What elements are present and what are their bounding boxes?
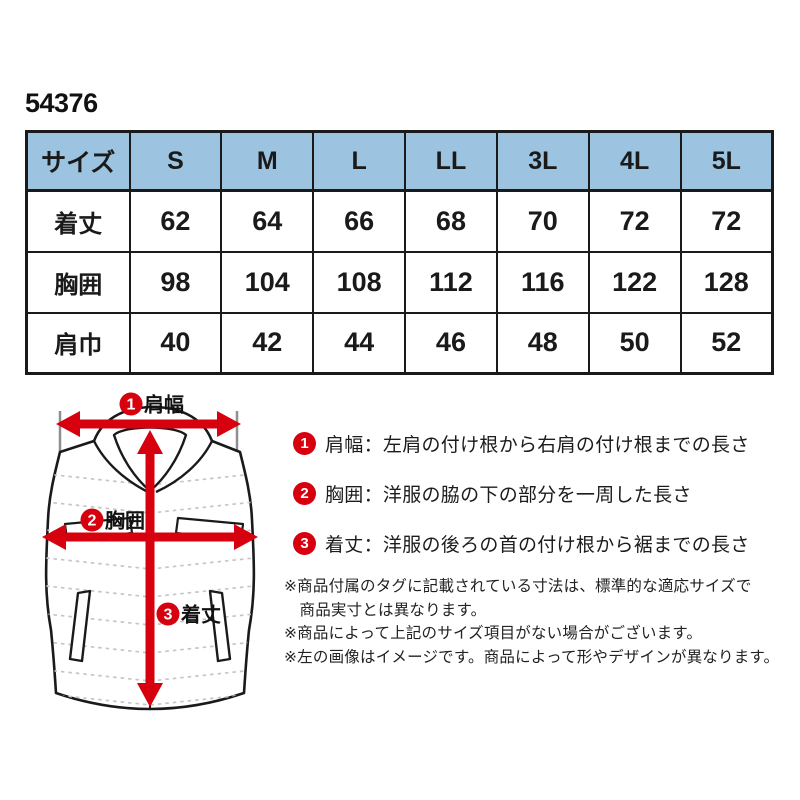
diagram-badge-shoulder: 1 肩幅 <box>120 393 185 417</box>
note-missing-items: ※商品によって上記のサイズ項目がない場合がございます。 <box>284 622 786 646</box>
table-cell: 104 <box>221 252 313 313</box>
table-cell: 70 <box>497 191 589 252</box>
size-col-header: 3L <box>497 132 589 191</box>
size-col-header: L <box>313 132 405 191</box>
diagram-badge-chest: 2 胸囲 <box>81 509 146 533</box>
size-col-header: M <box>221 132 313 191</box>
table-row-chest: 胸囲 98 104 108 112 116 122 128 <box>27 252 773 313</box>
svg-text:肩幅: 肩幅 <box>144 393 184 417</box>
svg-text:3: 3 <box>164 607 173 624</box>
row-label: 着丈 <box>27 191 130 252</box>
table-cell: 44 <box>313 313 405 374</box>
table-cell: 46 <box>405 313 497 374</box>
legend-item-length: 3 着丈：洋服の後ろの首の付け根から裾までの長さ <box>293 531 785 555</box>
measurement-legend: 1 肩幅：左肩の付け根から右肩の付け根までの長さ 2 胸囲：洋服の脇の下の部分を… <box>293 431 785 581</box>
note-tag-size: ※商品付属のタグに記載されている寸法は、標準的な適応サイズで 商品実寸とは異なり… <box>284 575 786 622</box>
table-cell: 62 <box>130 191 222 252</box>
size-col-header: 5L <box>681 132 773 191</box>
row-label: 胸囲 <box>27 252 130 313</box>
table-cell: 112 <box>405 252 497 313</box>
svg-text:着丈: 着丈 <box>180 603 221 627</box>
legend-text: 肩幅：左肩の付け根から右肩の付け根までの長さ <box>325 430 750 457</box>
table-cell: 68 <box>405 191 497 252</box>
table-cell: 40 <box>130 313 222 374</box>
table-cell: 50 <box>589 313 681 374</box>
vest-measurement-diagram: 1 肩幅 2 胸囲 3 着丈 <box>10 378 300 723</box>
size-col-header: 4L <box>589 132 681 191</box>
table-row-body-length: 着丈 62 64 66 68 70 72 72 <box>27 191 773 252</box>
svg-text:2: 2 <box>88 513 97 530</box>
table-cell: 42 <box>221 313 313 374</box>
product-code: 54376 <box>25 88 98 119</box>
svg-text:1: 1 <box>127 397 136 414</box>
legend-item-shoulder: 1 肩幅：左肩の付け根から右肩の付け根までの長さ <box>293 431 785 455</box>
table-row-shoulder: 肩巾 40 42 44 46 48 50 52 <box>27 313 773 374</box>
note-image-disclaimer: ※左の画像はイメージです。商品によって形やデザインが異なります。 <box>284 646 786 670</box>
table-cell: 48 <box>497 313 589 374</box>
legend-badge-2: 2 <box>293 482 316 505</box>
table-cell: 72 <box>589 191 681 252</box>
legend-item-chest: 2 胸囲：洋服の脇の下の部分を一周した長さ <box>293 481 785 505</box>
size-col-header: LL <box>405 132 497 191</box>
disclaimer-notes: ※商品付属のタグに記載されている寸法は、標準的な適応サイズで 商品実寸とは異なり… <box>284 575 786 669</box>
legend-text: 着丈：洋服の後ろの首の付け根から裾までの長さ <box>325 530 750 557</box>
table-cell: 64 <box>221 191 313 252</box>
table-cell: 66 <box>313 191 405 252</box>
legend-badge-3: 3 <box>293 532 316 555</box>
diagram-badge-length: 3 着丈 <box>157 603 222 627</box>
size-table-container: サイズ S M L LL 3L 4L 5L 着丈 62 64 66 68 70 … <box>25 130 774 375</box>
size-col-header: S <box>130 132 222 191</box>
legend-text: 胸囲：洋服の脇の下の部分を一周した長さ <box>325 480 692 507</box>
table-cell: 72 <box>681 191 773 252</box>
svg-text:胸囲: 胸囲 <box>105 509 145 533</box>
table-cell: 122 <box>589 252 681 313</box>
table-cell: 108 <box>313 252 405 313</box>
table-cell: 116 <box>497 252 589 313</box>
size-table-header-row: サイズ S M L LL 3L 4L 5L <box>27 132 773 191</box>
table-cell: 98 <box>130 252 222 313</box>
table-cell: 128 <box>681 252 773 313</box>
row-label: 肩巾 <box>27 313 130 374</box>
size-table: サイズ S M L LL 3L 4L 5L 着丈 62 64 66 68 70 … <box>25 130 774 375</box>
size-table-corner-header: サイズ <box>27 132 130 191</box>
legend-badge-1: 1 <box>293 432 316 455</box>
table-cell: 52 <box>681 313 773 374</box>
